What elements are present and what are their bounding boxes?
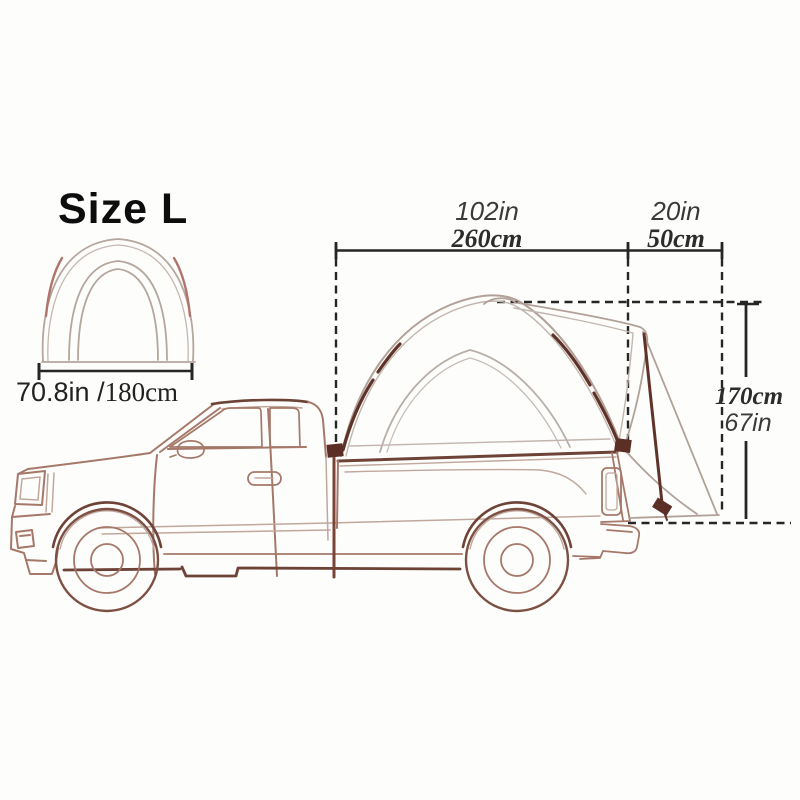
rear-body-bottom (573, 556, 600, 557)
height-label-in: 67in (724, 409, 771, 437)
tent-ridge-line (518, 303, 640, 327)
truck-tent-diagram: Size L 70.8in /180cm 102in 260cm 20in 50… (0, 0, 800, 800)
body-molding (102, 530, 330, 534)
rear-corner-buckle (614, 438, 632, 453)
cab-rear (308, 402, 326, 457)
front-width-label-cm: 180cm (105, 377, 179, 407)
diagram-canvas: Size L 70.8in /180cm 102in 260cm 20in 50… (0, 0, 800, 800)
cab-bed-gap (326, 457, 328, 540)
rear-bumper (580, 524, 639, 559)
overhang-label-cm: 50cm (647, 224, 705, 253)
tent-pole-segment-b (378, 344, 400, 372)
awning-ground-hem (629, 515, 719, 518)
rear-door-seam (268, 409, 277, 576)
front-width-label: 70.8in /180cm (16, 377, 178, 407)
overhang-label-in: 20in (650, 196, 700, 226)
bed-front-edge (337, 461, 338, 528)
rocker-bar (64, 567, 460, 576)
fog-light (16, 530, 34, 548)
body-crease (98, 516, 600, 528)
front-corner-buckle (326, 443, 343, 458)
height-label-cm: 170cm (715, 383, 783, 410)
quarter-window (270, 408, 300, 447)
size-label: Size L (58, 185, 188, 233)
front-tent-door-inner (78, 269, 158, 360)
tent-pole-segment-d (594, 393, 618, 442)
rear-wheel (466, 509, 568, 611)
tent-inner-arch-line2 (387, 358, 561, 452)
windshield-pillar (150, 404, 220, 453)
headlight-inner (20, 477, 40, 500)
bed-tent-illustration (326, 295, 719, 577)
grille-bars (46, 473, 54, 512)
bed-length-label-cm: 260cm (451, 224, 523, 253)
cab-roof (212, 400, 308, 404)
tent-bottom-hem (350, 439, 610, 446)
front-width-label-in: 70.8in / (16, 377, 105, 407)
bed-inner-contour (345, 470, 586, 494)
front-wheel (56, 509, 158, 611)
ground-strap-buckle (652, 498, 672, 516)
truck-illustration (11, 400, 639, 611)
front-tent-outer-arch (43, 239, 194, 361)
front-view-tent (42, 239, 195, 362)
tent-pole-segment-c (553, 335, 590, 385)
bed-rail (338, 452, 617, 461)
bed-length-label-in: 102in (455, 196, 519, 226)
front-door-seam (153, 455, 157, 574)
tent-inner-arch (380, 350, 570, 452)
